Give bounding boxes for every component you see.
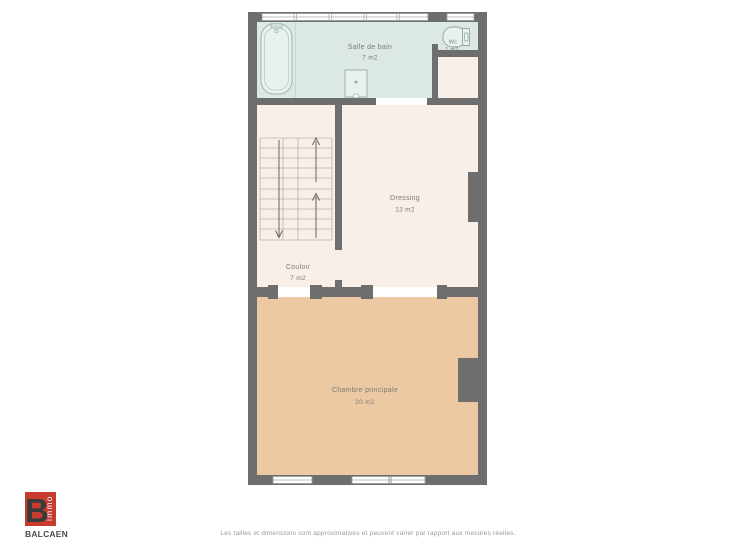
area-chambre-principale: 20 m2 [355,399,375,406]
floor-plan: Salle de bain 7 m2 Wc 1 m2 Dressing 13 m… [248,12,487,485]
wall-bath-south-b [427,98,478,105]
page: Salle de bain 7 m2 Wc 1 m2 Dressing 13 m… [0,0,736,553]
area-salle-de-bain: 7 m2 [362,55,378,62]
label-wc: Wc [449,40,458,46]
nook-floor [438,57,478,98]
area-wc: 1 m2 [445,47,458,53]
label-dressing: Dressing [390,195,420,202]
wall-bath-south-a [257,98,376,105]
door-jamb-2 [310,285,322,299]
label-salle-de-bain: Salle de bain [348,44,392,51]
wall-couloir-dressing [335,105,342,250]
bathtub-faucet [271,24,282,29]
label-chambre-principale: Chambre principale [332,387,398,394]
bathroom-wc-passage [432,22,438,44]
bathtub [261,22,296,98]
area-couloir: 7 m2 [290,275,306,282]
door-jamb-1 [268,285,278,299]
sink [345,70,367,98]
room-floors [257,22,478,475]
label-couloir: Couloir [286,264,311,271]
door-dressing-bedroom [373,287,437,297]
couloir-floor [257,105,335,287]
wall-left [248,12,257,485]
door-jamb-3 [361,285,373,299]
wall-right [478,12,487,485]
disclaimer-text: Les tailles et dimensions sont approxima… [0,530,736,537]
bedroom-floor [257,297,478,475]
door-jamb-4 [437,285,447,299]
door-couloir-bedroom [278,287,310,297]
bedroom-pilaster [458,358,478,402]
area-dressing: 13 m2 [395,207,415,214]
wall-couloir-dressing-stub [335,280,342,287]
door-couloir-dressing [335,250,342,280]
dressing-pilaster [468,172,478,222]
logo-immo-vertical: immo [44,495,54,521]
door-bathroom-dressing [376,98,427,105]
